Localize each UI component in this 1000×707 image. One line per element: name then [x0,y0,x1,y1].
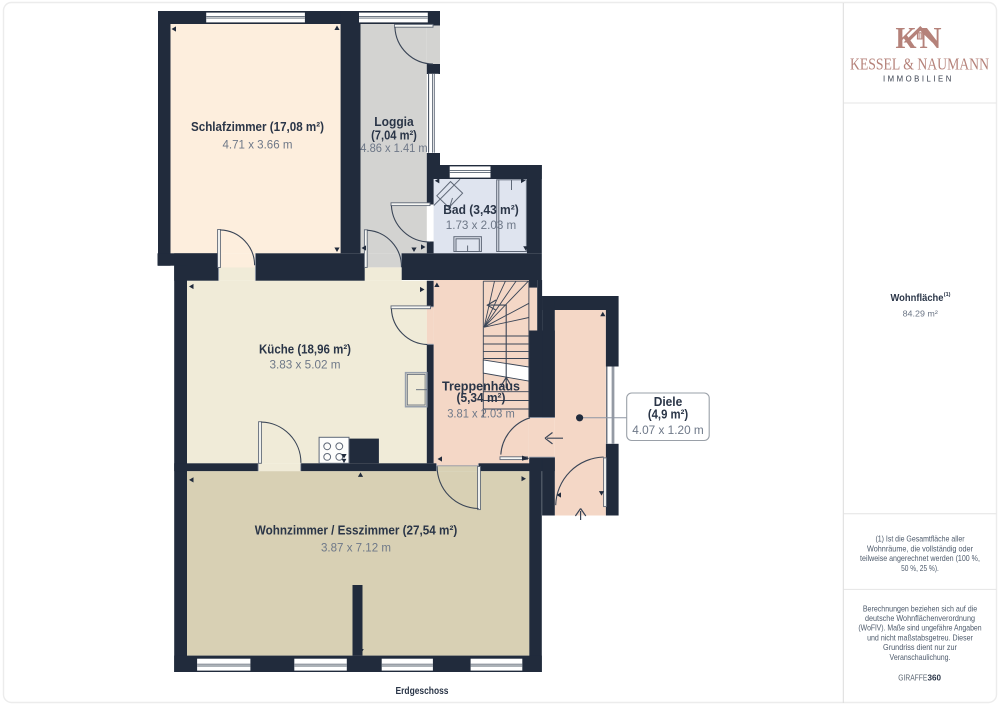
svg-text:Bad (3,43 m²): Bad (3,43 m²) [443,202,519,217]
svg-text:3.87 x 7.12 m: 3.87 x 7.12 m [321,540,391,554]
svg-text:K: K [896,20,917,55]
svg-text:und nicht maßstabsgetreu. Dies: und nicht maßstabsgetreu. Dieser [867,633,973,642]
svg-text:Schlafzimmer (17,08 m²): Schlafzimmer (17,08 m²) [191,119,324,134]
svg-text:84.29 m²: 84.29 m² [903,309,938,319]
svg-text:Berechnungen beziehen sich auf: Berechnungen beziehen sich auf die [863,604,978,613]
svg-text:Wohnfläche: Wohnfläche [891,293,945,304]
svg-text:teilweise angerechnet werden (: teilweise angerechnet werden (100 %, [860,554,980,563]
svg-text:Küche (18,96 m²): Küche (18,96 m²) [259,342,351,357]
svg-text:Grundriss dient nur zur: Grundriss dient nur zur [883,643,957,652]
svg-text:4.86 x 1.41 m: 4.86 x 1.41 m [360,141,427,155]
svg-text:(5,34 m²): (5,34 m²) [457,390,506,405]
svg-text:50 %, 25 %).: 50 %, 25 %). [901,564,939,573]
svg-text:360: 360 [928,672,942,682]
svg-text:4.07 x 1.20 m: 4.07 x 1.20 m [632,423,704,437]
svg-text:Veranschaulichung.: Veranschaulichung. [890,653,951,662]
svg-text:(4,9 m²): (4,9 m²) [648,406,688,421]
svg-text:(1) Ist die Gesamtfläche aller: (1) Ist die Gesamtfläche aller [875,535,964,544]
svg-text:GIRAFFE: GIRAFFE [898,672,927,682]
svg-text:1.73 x 2.03 m: 1.73 x 2.03 m [446,218,517,232]
svg-text:(1): (1) [944,292,951,298]
svg-text:IMMOBILIEN: IMMOBILIEN [883,75,954,84]
svg-text:Erdgeschoss: Erdgeschoss [396,686,449,697]
svg-text:3.83 x 5.02 m: 3.83 x 5.02 m [270,358,341,372]
svg-text:3.81 x 2.03 m: 3.81 x 2.03 m [447,406,515,420]
svg-text:Wohnräume, die vollständig ode: Wohnräume, die vollständig oder [867,544,973,553]
svg-text:(WoFlV). Maße sind ungefähre A: (WoFlV). Maße sind ungefähre Angaben [858,624,982,633]
svg-text:KESSEL & NAUMANN: KESSEL & NAUMANN [850,55,989,74]
svg-text:Wohnzimmer / Esszimmer (27,54: Wohnzimmer / Esszimmer (27,54 m²) [255,523,458,538]
svg-text:deutsche Wohnflächenverordnung: deutsche Wohnflächenverordnung [865,614,975,623]
svg-text:4.71 x 3.66 m: 4.71 x 3.66 m [223,138,293,152]
